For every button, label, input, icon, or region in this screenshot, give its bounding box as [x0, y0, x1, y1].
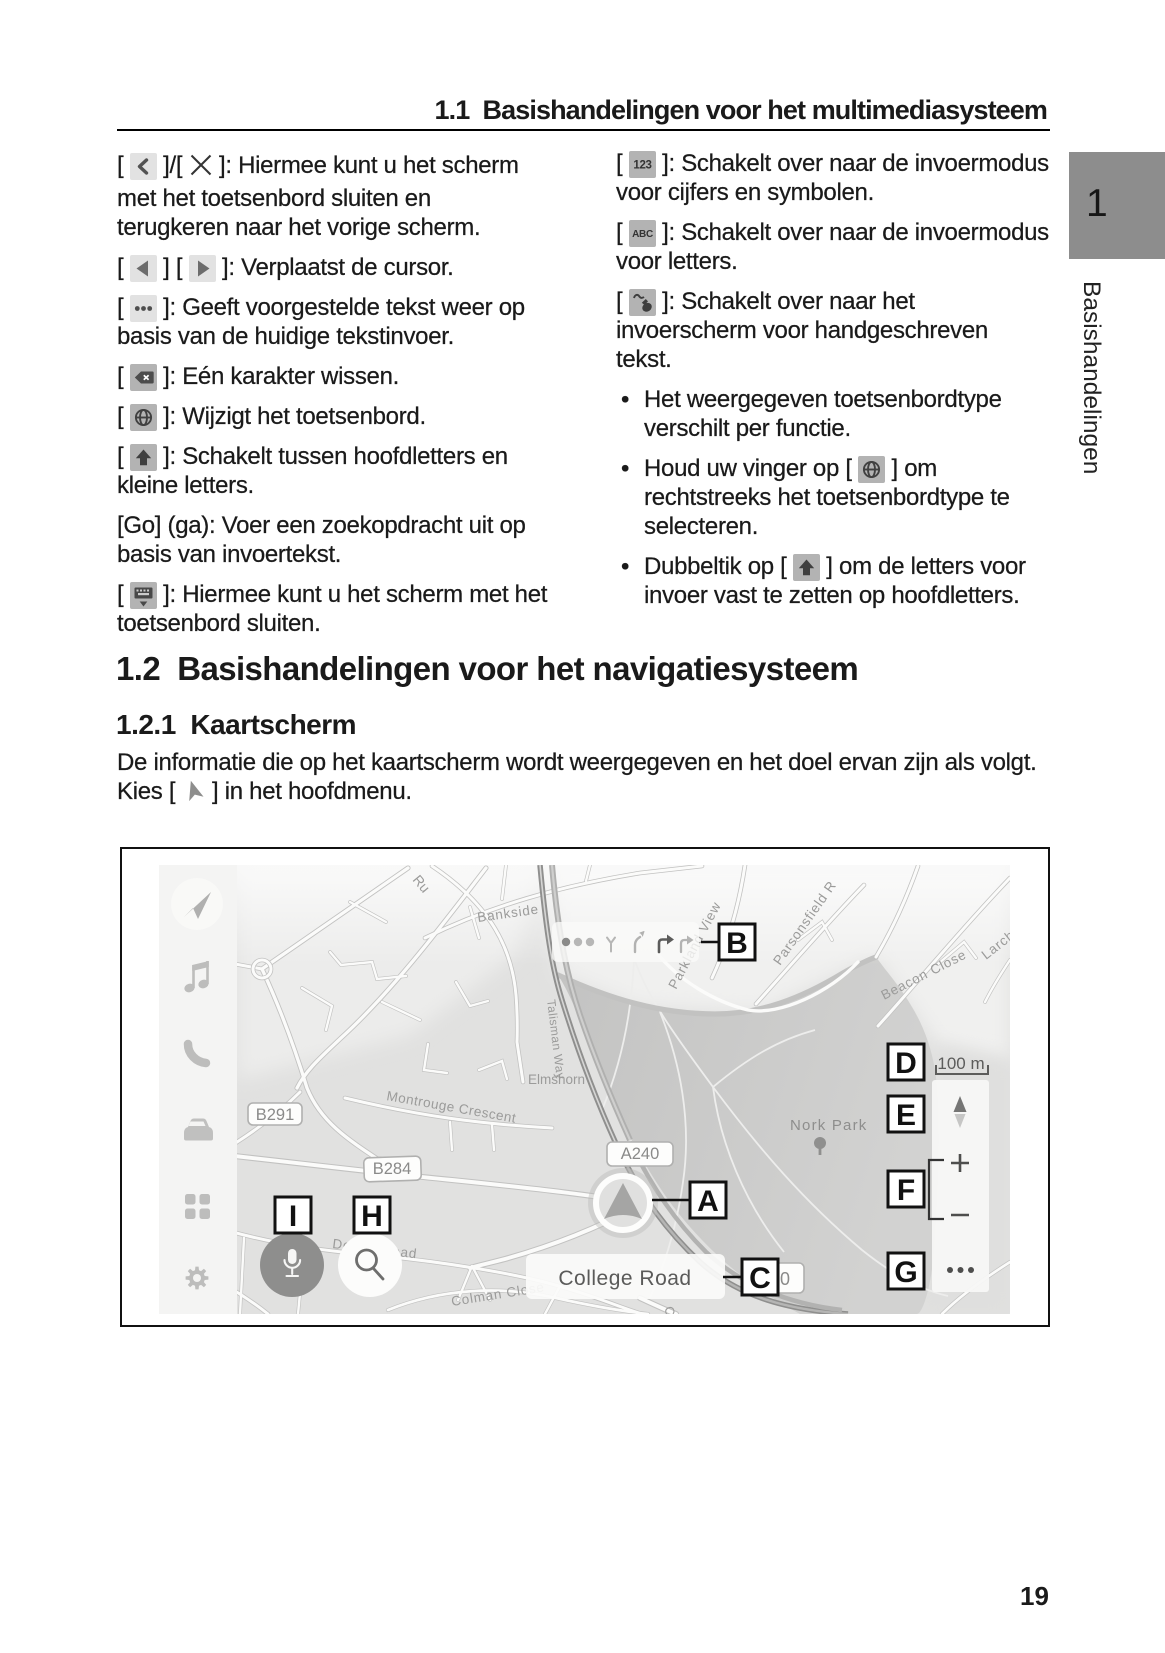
svg-text:123: 123 — [633, 160, 651, 172]
svg-text:Elmshorn: Elmshorn — [528, 1072, 585, 1087]
svg-text:C: C — [749, 1262, 771, 1295]
svg-text:College Road: College Road — [558, 1267, 691, 1290]
svg-text:A: A — [697, 1185, 719, 1218]
svg-text:ABC: ABC — [632, 229, 653, 240]
svg-text:H: H — [361, 1200, 383, 1233]
svg-text:B284: B284 — [373, 1160, 412, 1178]
svg-text:I: I — [289, 1200, 297, 1233]
svg-text:100 m: 100 m — [937, 1054, 984, 1073]
svg-text:A240: A240 — [621, 1145, 660, 1163]
svg-text:B291: B291 — [256, 1106, 295, 1124]
svg-text:Nork Park: Nork Park — [790, 1117, 867, 1134]
svg-text:E: E — [896, 1099, 916, 1132]
svg-text:0: 0 — [780, 1269, 790, 1289]
svg-text:G: G — [894, 1256, 917, 1289]
svg-text:D: D — [895, 1047, 917, 1080]
svg-text:B: B — [726, 927, 748, 960]
svg-text:F: F — [897, 1174, 915, 1207]
